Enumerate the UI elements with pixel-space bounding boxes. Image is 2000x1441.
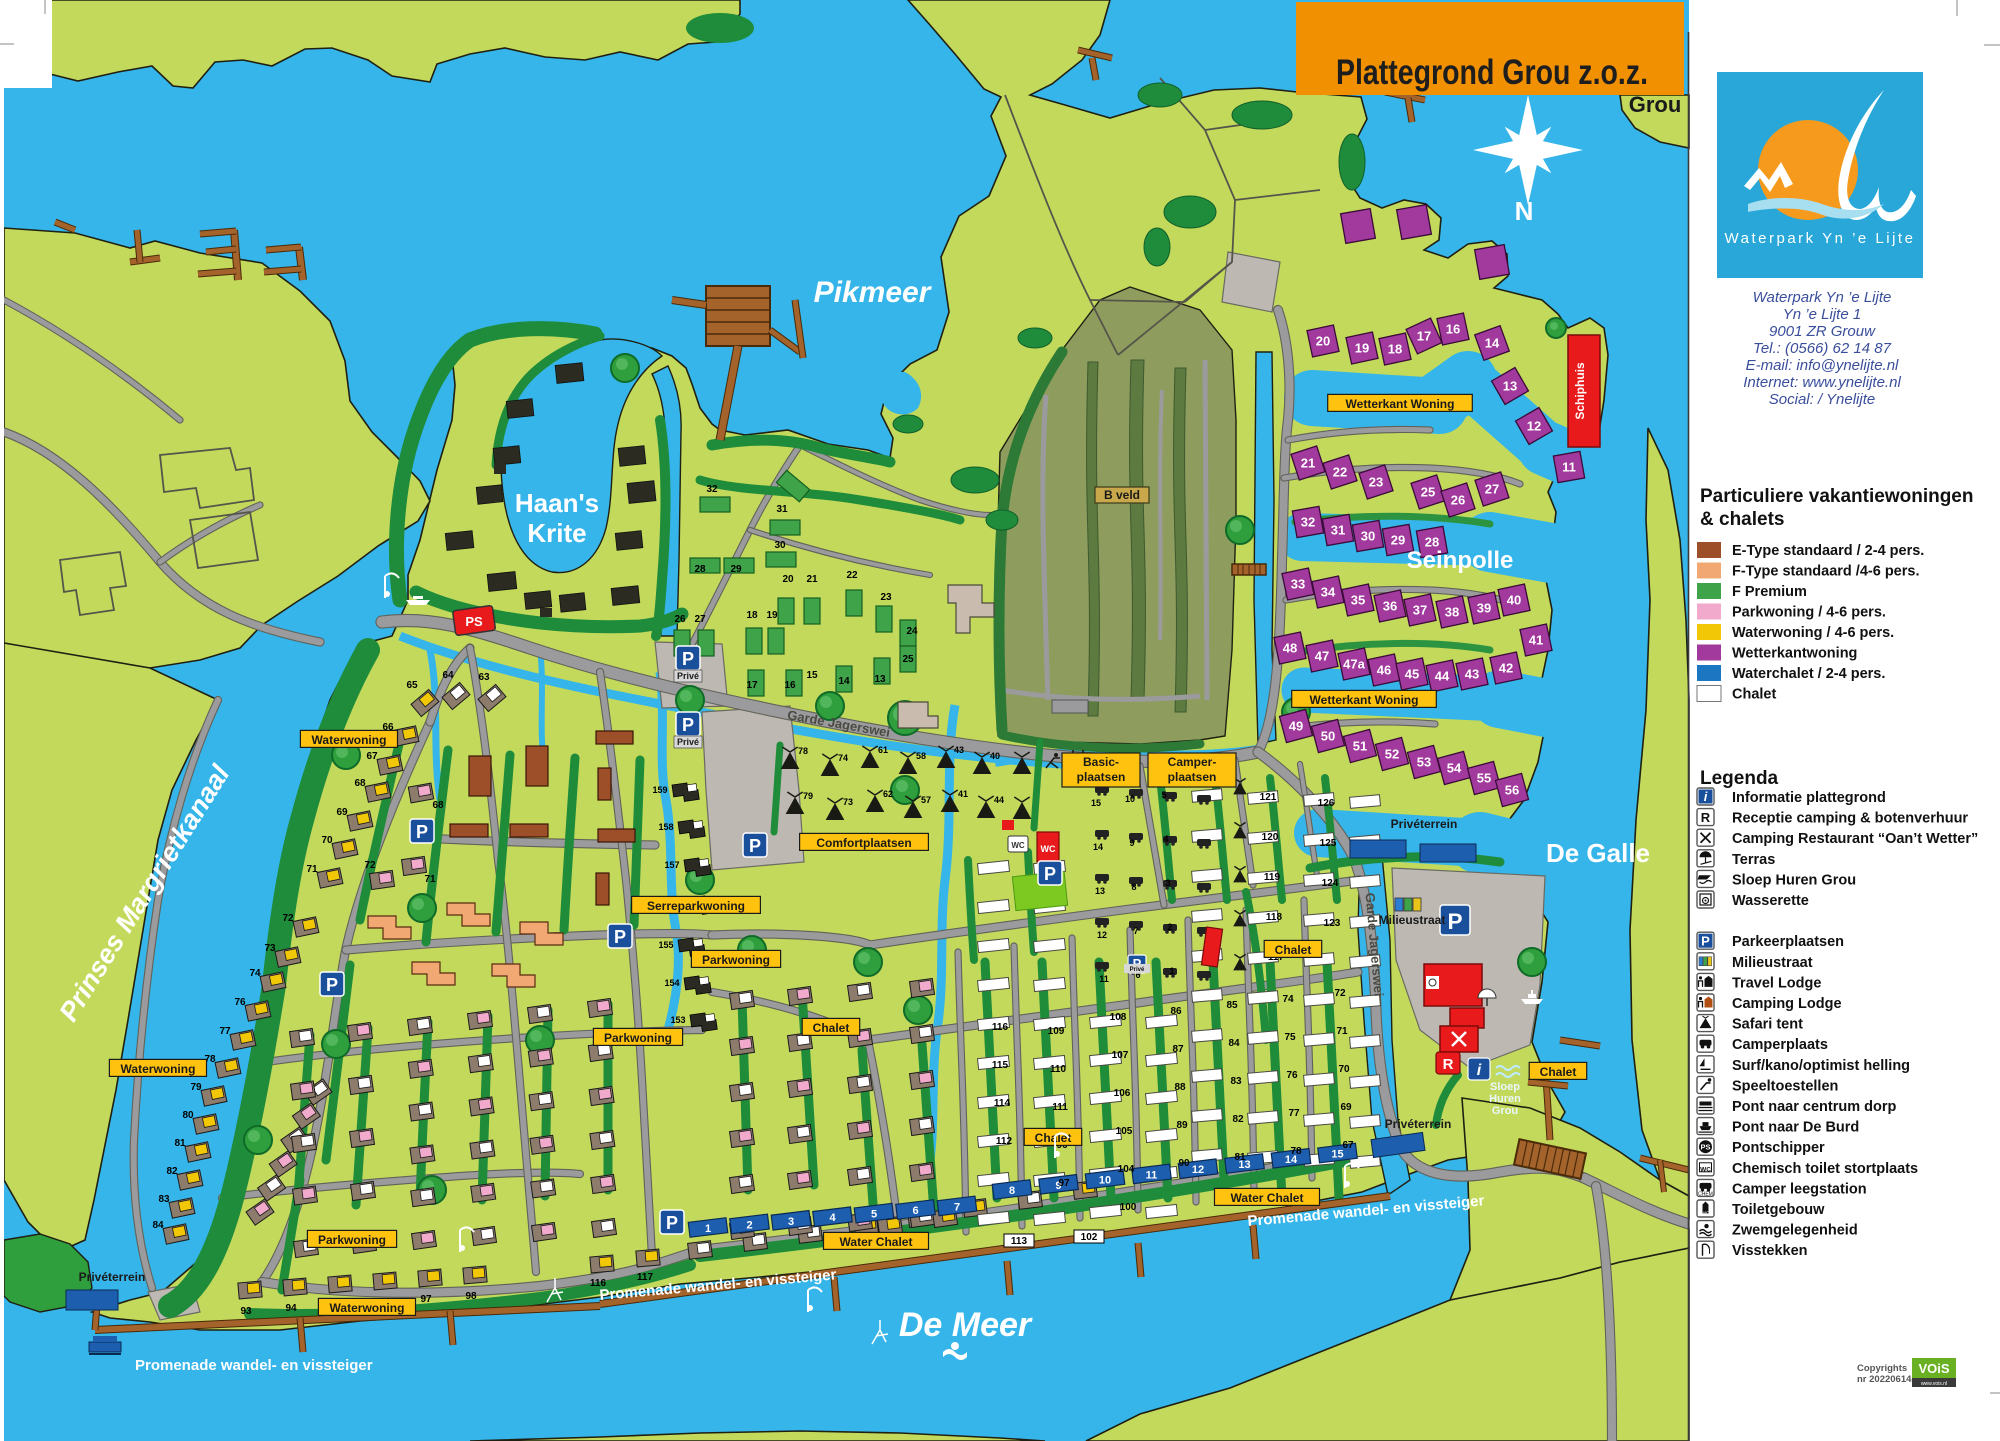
svg-text:15: 15 <box>1091 798 1101 808</box>
svg-text:12: 12 <box>1527 419 1541 434</box>
svg-text:Parkwoning: Parkwoning <box>702 953 770 967</box>
svg-text:68: 68 <box>432 800 444 811</box>
svg-text:76: 76 <box>1286 1070 1298 1081</box>
svg-text:PS: PS <box>465 614 483 629</box>
svg-text:Camper-: Camper- <box>1168 755 1217 769</box>
svg-text:65: 65 <box>406 680 418 691</box>
svg-text:71: 71 <box>424 874 436 885</box>
svg-text:15: 15 <box>806 670 818 681</box>
svg-text:82: 82 <box>166 1166 178 1177</box>
svg-text:22: 22 <box>1333 465 1347 480</box>
svg-text:74: 74 <box>249 968 261 979</box>
svg-text:Camping Restaurant “Oan’t Wett: Camping Restaurant “Oan’t Wetter” <box>1732 831 1978 847</box>
svg-text:Social: / Ynelijte: Social: / Ynelijte <box>1769 391 1875 408</box>
svg-text:94: 94 <box>285 1303 297 1314</box>
svg-text:Wetterkant Woning: Wetterkant Woning <box>1310 693 1419 707</box>
svg-text:87: 87 <box>1172 1044 1184 1055</box>
svg-text:Wetterkantwoning: Wetterkantwoning <box>1732 646 1857 662</box>
svg-text:41: 41 <box>1529 633 1543 648</box>
svg-text:Particuliere vakantiewoningen: Particuliere vakantiewoningen <box>1700 486 1973 507</box>
svg-text:69: 69 <box>336 807 348 818</box>
svg-text:R: R <box>1443 1056 1454 1073</box>
svg-text:Promenade wandel- en vissteige: Promenade wandel- en vissteiger <box>135 1357 373 1374</box>
svg-text:Milieustraat: Milieustraat <box>1732 955 1813 971</box>
svg-text:118: 118 <box>1266 912 1283 923</box>
svg-text:Waterwoning: Waterwoning <box>330 1301 405 1315</box>
svg-text:Milieustraat: Milieustraat <box>1379 913 1446 927</box>
svg-text:40: 40 <box>990 751 1000 761</box>
svg-text:43: 43 <box>1465 667 1479 682</box>
svg-text:11: 11 <box>1562 460 1576 475</box>
svg-text:104: 104 <box>1118 1164 1135 1175</box>
svg-text:23: 23 <box>1369 475 1383 490</box>
svg-text:3: 3 <box>788 1216 794 1228</box>
svg-text:P: P <box>749 836 761 856</box>
svg-text:100: 100 <box>1120 1202 1137 1213</box>
svg-text:77: 77 <box>219 1026 231 1037</box>
svg-text:97: 97 <box>1058 1178 1070 1189</box>
svg-text:1: 1 <box>1169 966 1174 976</box>
svg-text:P: P <box>1701 934 1710 949</box>
svg-text:Chemisch toilet stortplaats: Chemisch toilet stortplaats <box>1732 1161 1918 1177</box>
svg-text:63: 63 <box>478 672 490 683</box>
svg-text:21: 21 <box>806 574 818 585</box>
svg-text:16: 16 <box>1446 322 1460 337</box>
svg-text:Pont naar De Burd: Pont naar De Burd <box>1732 1120 1859 1136</box>
svg-text:106: 106 <box>1114 1088 1131 1099</box>
svg-text:CHEM: CHEM <box>1698 1191 1713 1197</box>
svg-text:75: 75 <box>1284 1032 1296 1043</box>
svg-text:78: 78 <box>798 746 808 756</box>
svg-text:WC: WC <box>1700 1166 1711 1173</box>
svg-text:E-mail: info@ynelijte.nl: E-mail: info@ynelijte.nl <box>1746 357 1899 374</box>
svg-text:9001 ZR Grouw: 9001 ZR Grouw <box>1769 323 1876 340</box>
svg-text:Parkwoning: Parkwoning <box>318 1233 386 1247</box>
svg-text:71: 71 <box>306 864 318 875</box>
svg-text:Safari tent: Safari tent <box>1732 1017 1803 1033</box>
svg-text:39: 39 <box>1477 601 1491 616</box>
svg-text:83: 83 <box>158 1194 170 1205</box>
svg-text:P: P <box>326 975 338 995</box>
svg-text:2: 2 <box>1167 922 1172 932</box>
svg-text:25: 25 <box>1421 485 1435 500</box>
svg-text:Huren: Huren <box>1489 1093 1521 1105</box>
svg-text:33: 33 <box>1291 577 1305 592</box>
svg-text:47: 47 <box>1315 649 1329 664</box>
svg-text:40: 40 <box>1507 593 1521 608</box>
svg-text:85: 85 <box>1226 1000 1238 1011</box>
svg-text:De Meer: De Meer <box>899 1306 1033 1344</box>
svg-text:30: 30 <box>774 540 786 551</box>
svg-text:Privéterrein: Privéterrein <box>79 1270 146 1284</box>
svg-text:7: 7 <box>1133 926 1138 936</box>
svg-text:4: 4 <box>829 1212 836 1224</box>
svg-text:120: 120 <box>1262 832 1279 843</box>
svg-text:115: 115 <box>992 1060 1009 1071</box>
svg-text:30: 30 <box>1361 529 1375 544</box>
svg-text:76: 76 <box>234 997 246 1008</box>
svg-text:P: P <box>666 1213 678 1233</box>
svg-text:43: 43 <box>954 745 964 755</box>
svg-text:36: 36 <box>1383 599 1397 614</box>
svg-text:72: 72 <box>282 913 294 924</box>
svg-text:68: 68 <box>354 778 366 789</box>
svg-text:Plattegrond Grou z.o.z.: Plattegrond Grou z.o.z. <box>1336 53 1648 92</box>
svg-text:17: 17 <box>746 680 758 691</box>
svg-text:64: 64 <box>442 670 454 681</box>
svg-text:83: 83 <box>1230 1076 1242 1087</box>
svg-text:74: 74 <box>1282 994 1294 1005</box>
svg-text:N: N <box>1515 196 1534 226</box>
svg-text:67: 67 <box>366 751 378 762</box>
svg-text:De Galle: De Galle <box>1546 838 1650 868</box>
svg-text:Waterwoning / 4-6 pers.: Waterwoning / 4-6 pers. <box>1732 625 1894 641</box>
svg-text:117: 117 <box>637 1272 654 1283</box>
svg-text:155: 155 <box>658 940 673 950</box>
svg-text:Legenda: Legenda <box>1700 768 1779 789</box>
svg-text:41: 41 <box>958 789 968 799</box>
svg-text:8: 8 <box>1009 1185 1015 1197</box>
svg-text:80: 80 <box>182 1110 194 1121</box>
svg-text:Wasserette: Wasserette <box>1732 893 1809 909</box>
svg-text:i: i <box>1704 789 1708 804</box>
svg-text:79: 79 <box>190 1082 202 1093</box>
svg-text:47a: 47a <box>1343 657 1365 672</box>
svg-text:109: 109 <box>1048 1026 1065 1037</box>
svg-text:3: 3 <box>1165 878 1170 888</box>
svg-text:32: 32 <box>706 484 718 495</box>
svg-text:26: 26 <box>1451 493 1465 508</box>
svg-text:88: 88 <box>1174 1082 1186 1093</box>
svg-text:13: 13 <box>1095 886 1105 896</box>
svg-text:10: 10 <box>1125 794 1135 804</box>
svg-text:97: 97 <box>420 1294 432 1305</box>
svg-text:11: 11 <box>1099 974 1109 984</box>
svg-text:Tel.: (0566) 62 14 87: Tel.: (0566) 62 14 87 <box>1753 340 1892 357</box>
svg-text:P: P <box>682 649 694 669</box>
svg-text:Chalet: Chalet <box>1732 687 1776 703</box>
svg-text:27: 27 <box>694 614 706 625</box>
svg-text:Privé: Privé <box>677 671 699 681</box>
svg-text:Schiphuis: Schiphuis <box>1573 362 1587 420</box>
svg-text:Toiletgebouw: Toiletgebouw <box>1732 1202 1825 1218</box>
svg-text:& chalets: & chalets <box>1700 509 1784 530</box>
svg-text:157: 157 <box>664 860 679 870</box>
svg-text:Yn ’e Lijte 1: Yn ’e Lijte 1 <box>1783 306 1861 323</box>
svg-text:62: 62 <box>883 789 893 799</box>
svg-text:49: 49 <box>1289 719 1303 734</box>
svg-text:10: 10 <box>1099 1175 1111 1187</box>
svg-text:Privéterrein: Privéterrein <box>1391 817 1458 831</box>
svg-text:VOiS: VOiS <box>1918 1361 1949 1376</box>
svg-text:159: 159 <box>652 785 667 795</box>
svg-text:110: 110 <box>1050 1064 1067 1075</box>
svg-text:12: 12 <box>1097 930 1107 940</box>
svg-text:Camperplaats: Camperplaats <box>1732 1037 1828 1053</box>
svg-text:Speeltoestellen: Speeltoestellen <box>1732 1078 1838 1094</box>
svg-text:P: P <box>1447 909 1462 934</box>
svg-text:158: 158 <box>658 822 673 832</box>
svg-text:25: 25 <box>902 654 914 665</box>
svg-text:79: 79 <box>803 791 813 801</box>
svg-text:105: 105 <box>1116 1126 1133 1137</box>
svg-text:71: 71 <box>1336 1026 1348 1037</box>
svg-text:Copyrights: Copyrights <box>1857 1363 1907 1374</box>
svg-text:31: 31 <box>776 504 788 515</box>
svg-text:Chalet: Chalet <box>1035 1131 1072 1145</box>
svg-text:Visstekken: Visstekken <box>1732 1243 1808 1259</box>
svg-text:124: 124 <box>1322 878 1339 889</box>
svg-text:70: 70 <box>321 835 333 846</box>
svg-text:23: 23 <box>880 592 892 603</box>
svg-text:Parkeerplaatsen: Parkeerplaatsen <box>1732 934 1844 950</box>
svg-text:58: 58 <box>916 751 926 761</box>
svg-text:PS: PS <box>1700 1143 1710 1152</box>
svg-text:73: 73 <box>264 943 276 954</box>
svg-text:R: R <box>1701 810 1711 825</box>
svg-text:154: 154 <box>664 978 679 988</box>
svg-text:Serreparkwoning: Serreparkwoning <box>647 899 745 913</box>
svg-text:126: 126 <box>1318 798 1335 809</box>
svg-text:54: 54 <box>1447 761 1462 776</box>
svg-text:E-Type standaard / 2-4 pers.: E-Type standaard / 2-4 pers. <box>1732 543 1924 559</box>
svg-text:16: 16 <box>784 680 796 691</box>
svg-text:89: 89 <box>1176 1120 1188 1131</box>
svg-text:P: P <box>682 715 694 735</box>
svg-text:F Premium: F Premium <box>1732 584 1807 600</box>
svg-text:B veld: B veld <box>1104 488 1140 502</box>
svg-text:Sloep Huren Grou: Sloep Huren Grou <box>1732 872 1856 888</box>
svg-text:32: 32 <box>1301 515 1315 530</box>
svg-text:Camping Lodge: Camping Lodge <box>1732 996 1842 1012</box>
svg-text:56: 56 <box>1505 783 1519 798</box>
svg-text:14: 14 <box>838 676 850 687</box>
svg-text:73: 73 <box>843 797 853 807</box>
svg-text:24: 24 <box>906 626 918 637</box>
svg-text:P: P <box>1044 864 1056 884</box>
svg-text:81: 81 <box>1234 1152 1246 1163</box>
svg-text:29: 29 <box>1391 533 1405 548</box>
svg-text:plaatsen: plaatsen <box>1168 770 1217 784</box>
svg-text:WC: WC <box>1011 841 1025 850</box>
svg-text:11: 11 <box>1146 1169 1158 1181</box>
svg-text:114: 114 <box>994 1098 1011 1109</box>
svg-text:6: 6 <box>912 1205 918 1217</box>
svg-text:77: 77 <box>1288 1108 1300 1119</box>
svg-text:Grou: Grou <box>1629 92 1682 117</box>
svg-text:Chalet: Chalet <box>1540 1065 1577 1079</box>
svg-text:82: 82 <box>1232 1114 1244 1125</box>
svg-text:Chalet: Chalet <box>813 1021 850 1035</box>
svg-text:4: 4 <box>1163 834 1168 844</box>
svg-text:44: 44 <box>1435 669 1450 684</box>
svg-text:123: 123 <box>1324 918 1341 929</box>
svg-text:Travel Lodge: Travel Lodge <box>1732 975 1821 991</box>
svg-text:112: 112 <box>996 1136 1013 1147</box>
svg-text:Zwemgelegenheid: Zwemgelegenheid <box>1732 1223 1858 1239</box>
svg-text:86: 86 <box>1170 1006 1182 1017</box>
svg-text:Parkwoning: Parkwoning <box>604 1031 672 1045</box>
svg-text:Sloep: Sloep <box>1490 1081 1520 1093</box>
svg-text:72: 72 <box>364 860 376 871</box>
svg-text:98: 98 <box>465 1291 477 1302</box>
svg-text:5: 5 <box>871 1209 877 1221</box>
svg-text:74: 74 <box>838 753 848 763</box>
svg-text:31: 31 <box>1331 523 1345 538</box>
svg-text:93: 93 <box>240 1306 252 1317</box>
svg-text:1: 1 <box>705 1223 711 1235</box>
svg-text:Pikmeer: Pikmeer <box>814 276 933 309</box>
svg-text:45: 45 <box>1405 667 1419 682</box>
svg-text:26: 26 <box>674 614 686 625</box>
svg-text:12: 12 <box>1192 1164 1204 1176</box>
svg-text:Waterwoning: Waterwoning <box>121 1062 196 1076</box>
svg-text:69: 69 <box>1340 1102 1352 1113</box>
svg-text:Terras: Terras <box>1732 852 1775 868</box>
svg-text:20: 20 <box>782 574 794 585</box>
svg-text:107: 107 <box>1112 1050 1129 1061</box>
svg-text:Seinpolle: Seinpolle <box>1407 547 1514 574</box>
svg-text:13: 13 <box>1503 379 1517 394</box>
svg-text:46: 46 <box>1377 663 1391 678</box>
svg-text:9: 9 <box>1129 838 1134 848</box>
svg-text:Comfortplaatsen: Comfortplaatsen <box>816 836 911 850</box>
svg-text:13: 13 <box>874 674 886 685</box>
svg-text:18: 18 <box>746 610 758 621</box>
svg-text:F-Type standaard /4-6 pers.: F-Type standaard /4-6 pers. <box>1732 564 1919 580</box>
svg-text:7: 7 <box>954 1201 960 1213</box>
svg-text:17: 17 <box>1417 329 1431 344</box>
svg-text:67: 67 <box>1342 1140 1354 1151</box>
svg-text:108: 108 <box>1110 1012 1127 1023</box>
svg-text:Privé: Privé <box>677 737 699 747</box>
svg-text:51: 51 <box>1353 739 1367 754</box>
svg-text:i: i <box>1477 1062 1482 1079</box>
svg-text:Surf/kano/optimist helling: Surf/kano/optimist helling <box>1732 1058 1910 1074</box>
svg-text:www.vois.nl: www.vois.nl <box>1921 1381 1947 1387</box>
svg-text:27: 27 <box>1485 482 1499 497</box>
svg-text:119: 119 <box>1264 872 1281 883</box>
svg-text:P: P <box>614 927 626 947</box>
svg-text:Waterpark Yn ’e Lijte: Waterpark Yn ’e Lijte <box>1725 230 1916 247</box>
svg-text:111: 111 <box>1052 1102 1068 1113</box>
svg-text:50: 50 <box>1321 729 1335 744</box>
svg-text:Basic-: Basic- <box>1083 755 1119 769</box>
svg-text:Camper leegstation: Camper leegstation <box>1732 1181 1867 1197</box>
svg-text:WC: WC <box>1041 844 1056 854</box>
svg-text:121: 121 <box>1260 792 1277 803</box>
svg-text:WC: WC <box>1702 1211 1710 1216</box>
svg-text:14: 14 <box>1093 842 1103 852</box>
svg-text:Parkwoning / 4-6 pers.: Parkwoning / 4-6 pers. <box>1732 605 1886 621</box>
svg-text:44: 44 <box>994 795 1004 805</box>
svg-text:Privé: Privé <box>1130 967 1145 973</box>
svg-text:Water Chalet: Water Chalet <box>1231 1191 1304 1205</box>
svg-text:53: 53 <box>1417 755 1431 770</box>
svg-text:Water Chalet: Water Chalet <box>840 1235 913 1249</box>
svg-text:57: 57 <box>921 795 931 805</box>
svg-text:81: 81 <box>174 1138 186 1149</box>
svg-text:Grou: Grou <box>1492 1105 1518 1117</box>
svg-text:28: 28 <box>694 564 706 575</box>
svg-text:Chalet: Chalet <box>1275 943 1312 957</box>
svg-text:29: 29 <box>730 564 742 575</box>
svg-text:18: 18 <box>1388 342 1402 357</box>
svg-text:52: 52 <box>1385 747 1399 762</box>
svg-text:116: 116 <box>992 1022 1009 1033</box>
svg-text:70: 70 <box>1338 1064 1350 1075</box>
svg-text:Waterpark Yn ’e Lijte: Waterpark Yn ’e Lijte <box>1753 289 1892 306</box>
svg-text:20: 20 <box>1316 334 1330 349</box>
svg-text:8: 8 <box>1131 882 1136 892</box>
svg-text:Internet: www.ynelijte.nl: Internet: www.ynelijte.nl <box>1743 374 1901 391</box>
svg-text:Haan's: Haan's <box>515 488 599 518</box>
svg-text:35: 35 <box>1351 593 1365 608</box>
svg-text:84: 84 <box>152 1220 164 1231</box>
svg-text:plaatsen: plaatsen <box>1077 770 1126 784</box>
svg-text:Informatie plattegrond: Informatie plattegrond <box>1732 790 1886 806</box>
svg-text:125: 125 <box>1320 838 1337 849</box>
svg-text:84: 84 <box>1228 1038 1240 1049</box>
svg-text:34: 34 <box>1321 585 1336 600</box>
svg-text:48: 48 <box>1283 641 1297 656</box>
svg-text:Wetterkant Woning: Wetterkant Woning <box>1346 397 1455 411</box>
svg-text:113: 113 <box>1011 1236 1028 1247</box>
svg-text:Waterchalet / 2-4 pers.: Waterchalet / 2-4 pers. <box>1732 666 1885 682</box>
svg-text:Krite: Krite <box>527 518 586 548</box>
svg-text:14: 14 <box>1485 336 1500 351</box>
svg-text:21: 21 <box>1301 456 1315 471</box>
svg-text:P: P <box>416 822 428 842</box>
svg-text:38: 38 <box>1445 605 1459 620</box>
svg-text:Pont naar centrum dorp: Pont naar centrum dorp <box>1732 1099 1896 1115</box>
svg-text:42: 42 <box>1499 661 1513 676</box>
svg-text:Receptie camping & botenverhuu: Receptie camping & botenverhuur <box>1732 811 1968 827</box>
svg-text:5: 5 <box>1161 790 1166 800</box>
svg-text:55: 55 <box>1477 771 1491 786</box>
svg-text:61: 61 <box>878 745 888 755</box>
svg-text:19: 19 <box>766 610 778 621</box>
svg-text:90: 90 <box>1178 1158 1190 1169</box>
svg-text:22: 22 <box>846 570 858 581</box>
svg-text:37: 37 <box>1413 603 1427 618</box>
svg-text:78: 78 <box>1290 1146 1302 1157</box>
svg-text:72: 72 <box>1334 988 1346 999</box>
svg-text:102: 102 <box>1081 1232 1098 1243</box>
svg-text:Privéterrein: Privéterrein <box>1385 1117 1452 1131</box>
svg-text:Waterwoning: Waterwoning <box>312 733 387 747</box>
svg-text:153: 153 <box>670 1015 685 1025</box>
svg-text:19: 19 <box>1355 341 1369 356</box>
svg-text:Pontschipper: Pontschipper <box>1732 1140 1825 1156</box>
svg-text:2: 2 <box>746 1219 752 1231</box>
